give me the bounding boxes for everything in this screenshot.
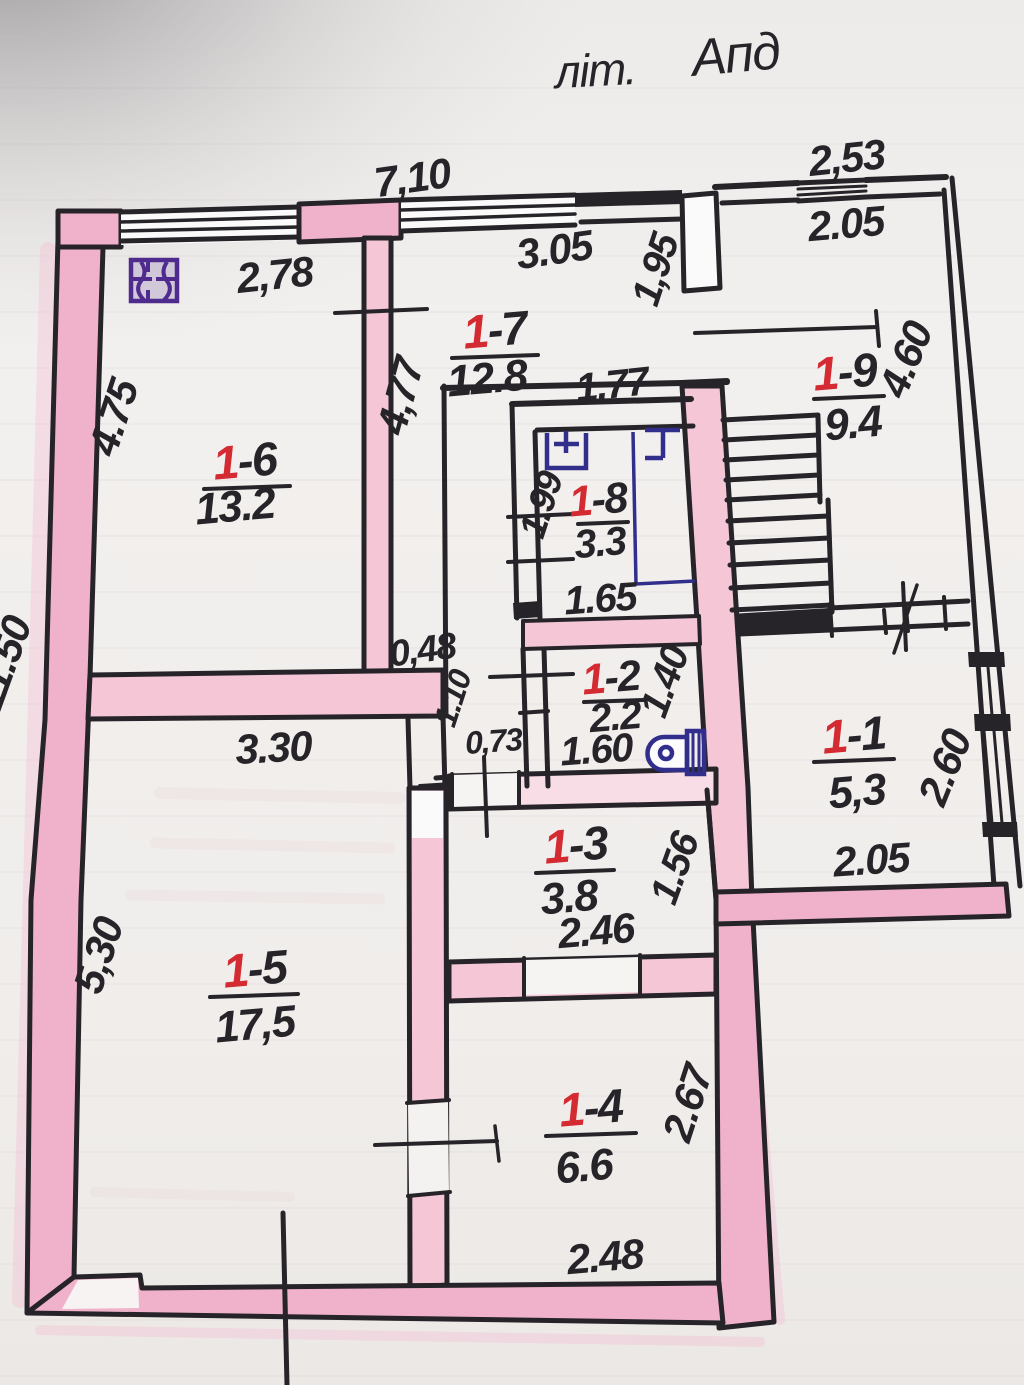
svg-text:5,3: 5,3 bbox=[826, 765, 888, 819]
svg-text:17,5: 17,5 bbox=[213, 997, 299, 1053]
svg-text:1-7: 1-7 bbox=[461, 300, 532, 359]
svg-text:3.30: 3.30 bbox=[234, 722, 313, 773]
svg-text:9.4: 9.4 bbox=[822, 397, 884, 451]
svg-text:2.05: 2.05 bbox=[831, 833, 913, 885]
svg-text:1-9: 1-9 bbox=[811, 342, 880, 400]
svg-text:2.46: 2.46 bbox=[555, 904, 638, 958]
svg-text:1-4: 1-4 bbox=[557, 1078, 626, 1136]
svg-text:12.8: 12.8 bbox=[445, 351, 531, 407]
svg-text:6.6: 6.6 bbox=[553, 1140, 616, 1194]
svg-text:2,53: 2,53 bbox=[805, 130, 887, 185]
svg-text:2.48: 2.48 bbox=[564, 1230, 647, 1284]
svg-text:3.3: 3.3 bbox=[572, 519, 628, 567]
svg-text:1-1: 1-1 bbox=[820, 705, 888, 763]
svg-text:1-3: 1-3 bbox=[542, 815, 611, 873]
svg-text:2,78: 2,78 bbox=[233, 247, 316, 302]
svg-text:0,73: 0,73 bbox=[464, 721, 524, 761]
svg-text:літ.: літ. bbox=[550, 42, 636, 98]
svg-text:1.65: 1.65 bbox=[563, 574, 640, 623]
svg-text:13.2: 13.2 bbox=[193, 479, 279, 535]
svg-text:2.05: 2.05 bbox=[805, 197, 888, 251]
svg-text:1.77: 1.77 bbox=[574, 359, 653, 411]
svg-text:Апд: Апд bbox=[686, 22, 782, 88]
svg-text:1-5: 1-5 bbox=[221, 939, 291, 998]
svg-text:1.60: 1.60 bbox=[559, 725, 635, 774]
